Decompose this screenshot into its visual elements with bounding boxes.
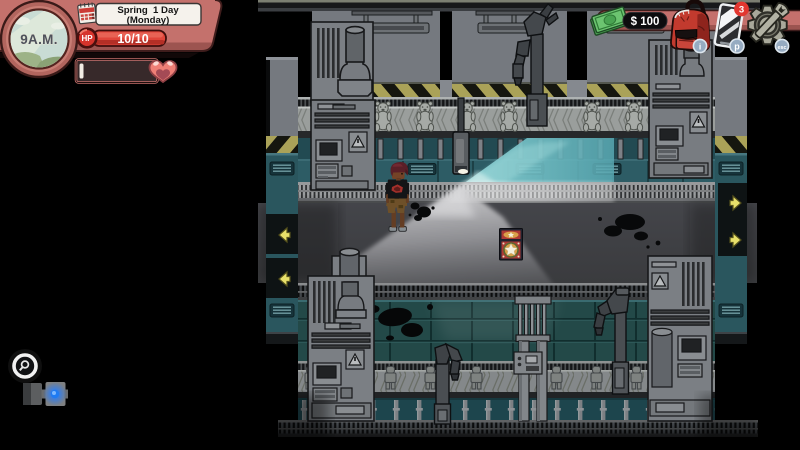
svg-text:10/10: 10/10 — [117, 32, 148, 46]
svg-text:esc: esc — [778, 45, 787, 51]
svg-text:(Monday): (Monday) — [127, 15, 170, 26]
svg-text:i: i — [699, 41, 701, 51]
svg-text:HP: HP — [81, 34, 93, 43]
svg-text:9A.M.: 9A.M. — [20, 32, 58, 47]
svg-text:3: 3 — [739, 5, 744, 16]
svg-text:p: p — [734, 42, 740, 52]
svg-text:$ 100: $ 100 — [631, 16, 660, 28]
